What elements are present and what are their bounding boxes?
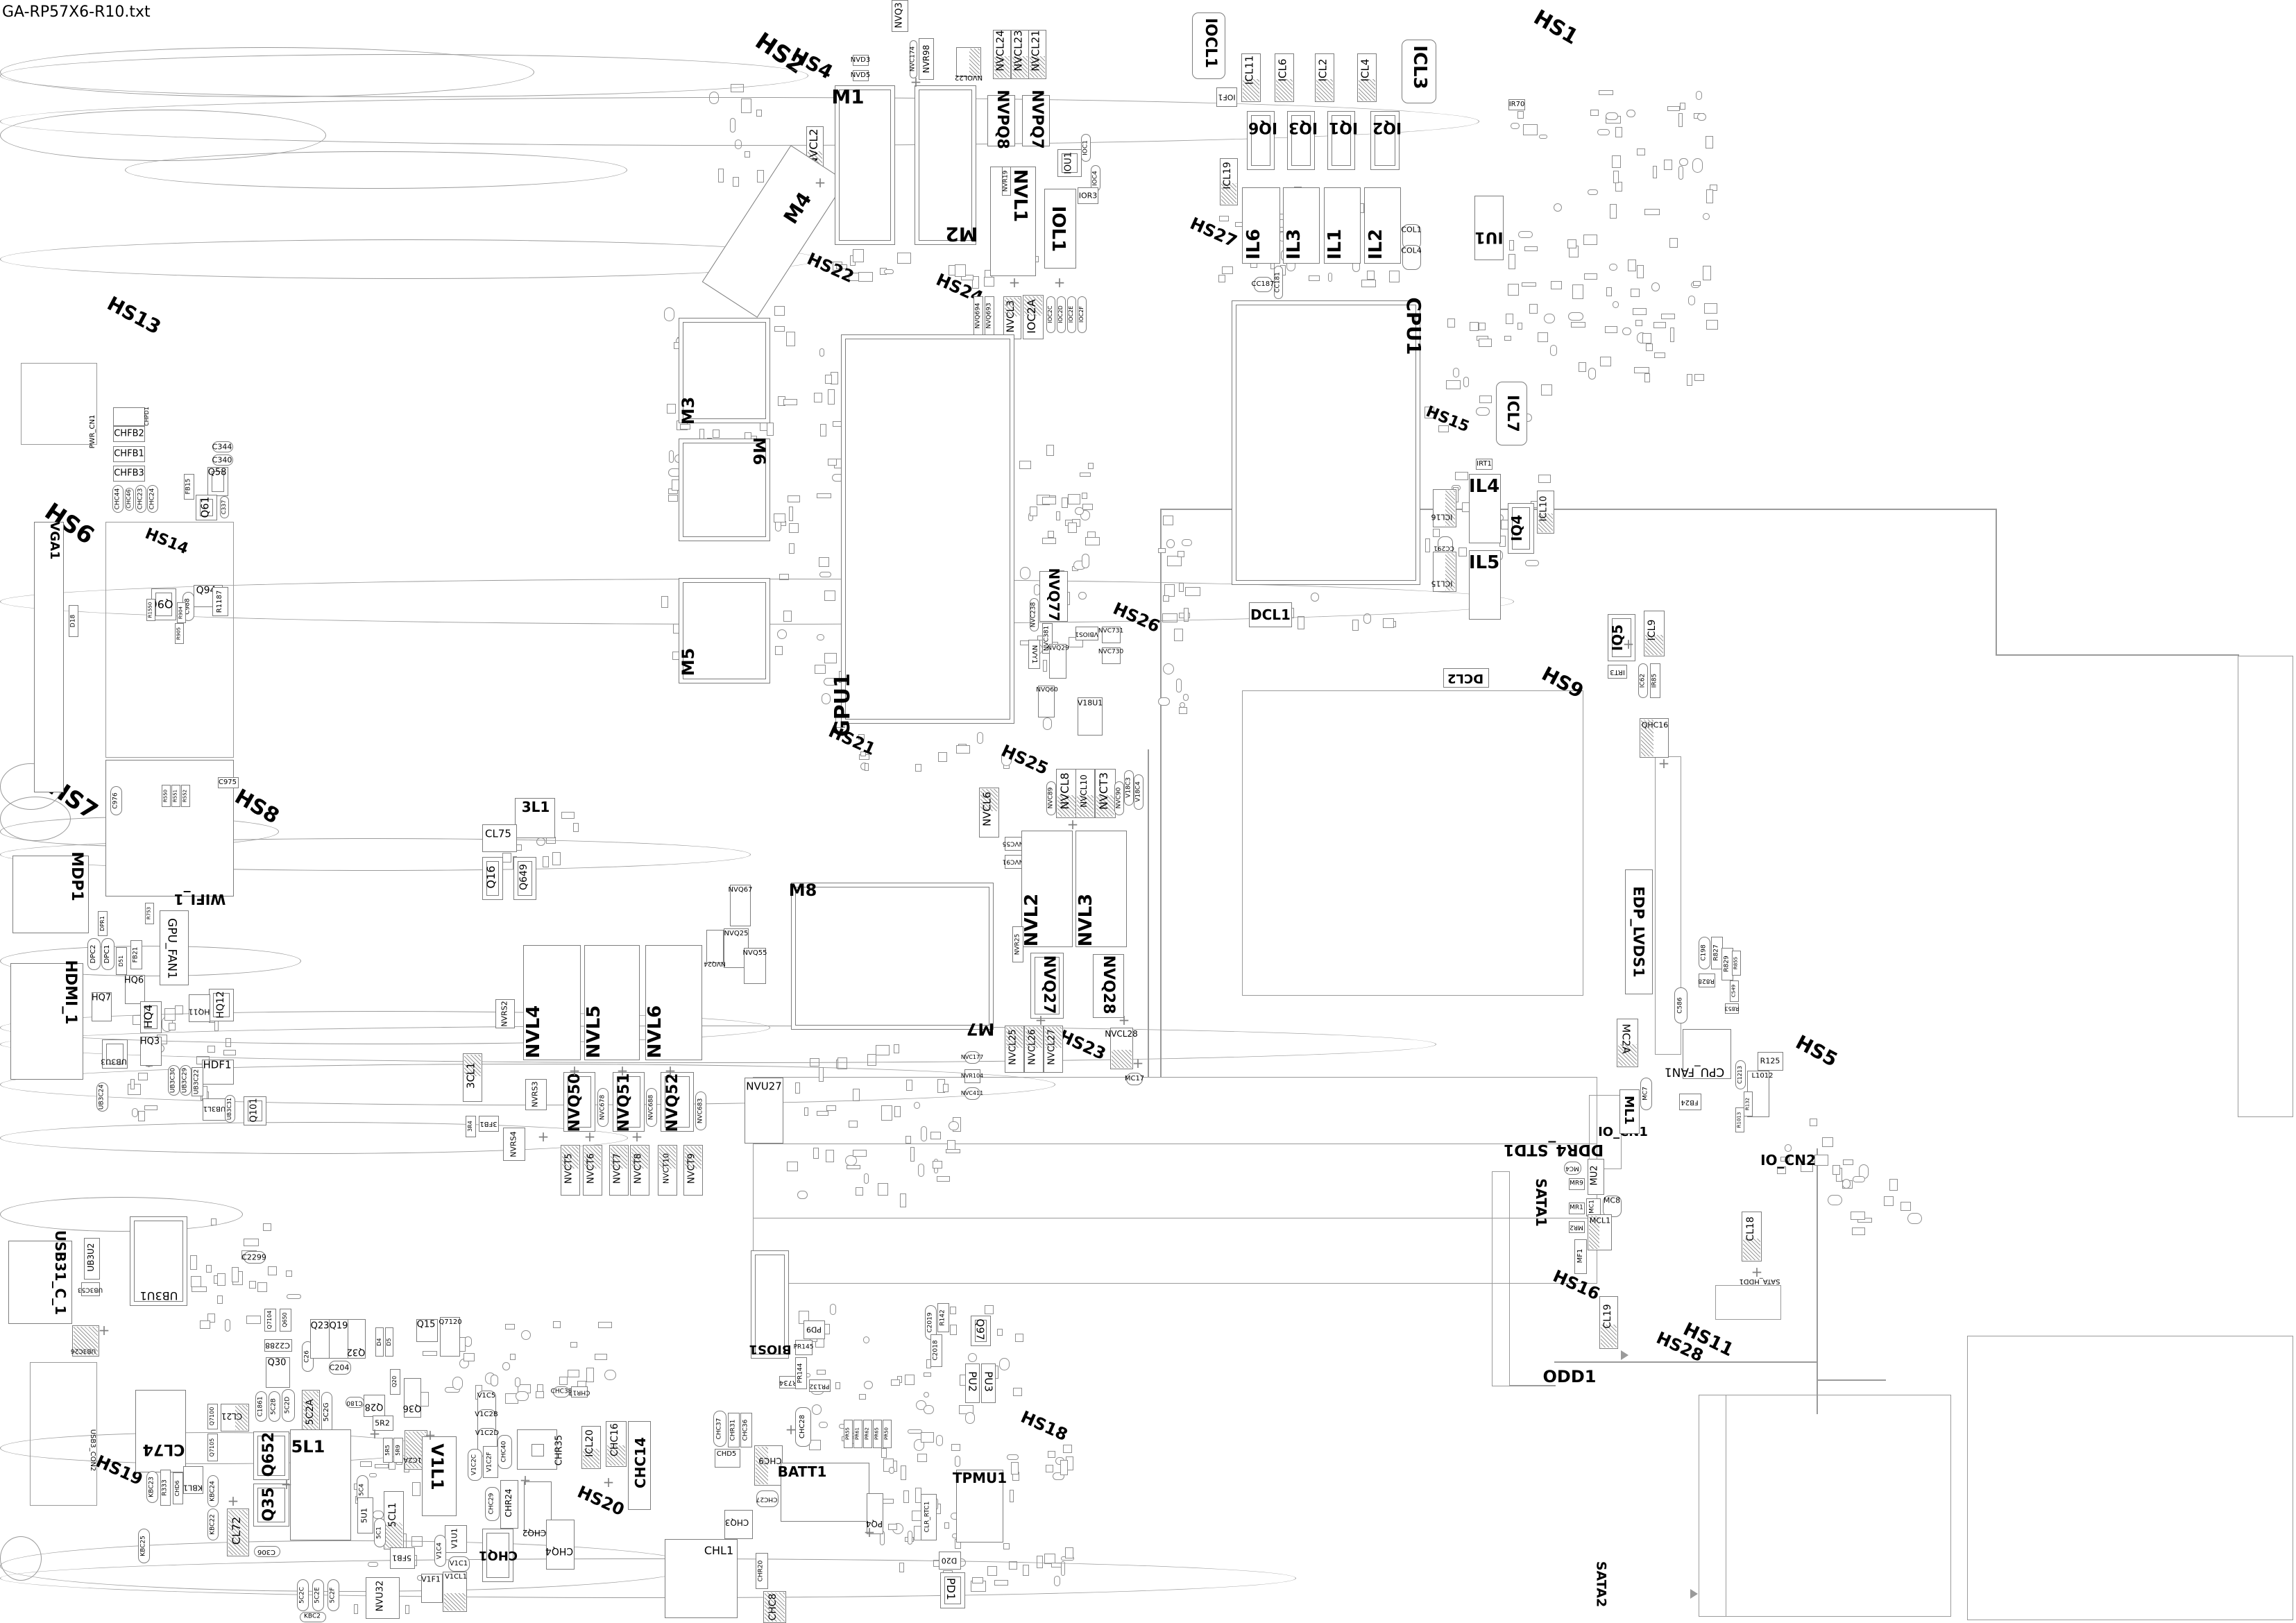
component-label-NVL1: NVL1: [1011, 169, 1029, 223]
component-label-UB3U2: UB3U2: [87, 1243, 95, 1271]
noise-part: [1179, 707, 1187, 714]
component-label-NVCL10: NVCL10: [1080, 774, 1088, 808]
component-label-HQ4: HQ4: [143, 1005, 154, 1029]
component-label-NVOL22: NVOL22: [955, 74, 983, 80]
noise-part: [1524, 246, 1538, 251]
component-label-NVC411: NVC411: [961, 1091, 983, 1096]
component-label-Q97: Q97: [975, 1319, 985, 1341]
noise-part: [668, 495, 678, 502]
noise-part: [1367, 271, 1375, 280]
component-label-C1213: C1213: [1737, 1066, 1743, 1084]
component-label-R1187: R1187: [216, 590, 223, 613]
component-CPU1: [1232, 300, 1420, 585]
component-label-R552: R552: [183, 790, 188, 802]
noise-part: [955, 1456, 960, 1467]
noise-part: [956, 745, 970, 754]
noise-part: [405, 1605, 409, 1614]
component-label-CHC36: CHC36: [743, 1420, 749, 1441]
board-outline-line: [1817, 1379, 1886, 1381]
component-label-5U1: 5U1: [361, 1508, 368, 1523]
noise-part: [1176, 679, 1182, 692]
component-label-CHD6: CHD6: [175, 1481, 180, 1497]
noise-part: [774, 513, 785, 522]
component-label-IOC2A: IOC2A: [1026, 299, 1037, 334]
noise-part: [1615, 127, 1622, 137]
noise-part: [921, 1126, 927, 1141]
noise-part: [900, 1193, 906, 1207]
component-label-PR61: PR61: [856, 1427, 860, 1440]
component-label-NVCT6: NVCT6: [587, 1153, 596, 1184]
component-label-PU3: PU3: [983, 1371, 994, 1392]
component-label-QHC16: QHC16: [1642, 722, 1669, 729]
noise-part: [1588, 368, 1596, 380]
noise-part: [1043, 660, 1047, 672]
noise-part: [192, 1286, 207, 1292]
component-label-Q101: Q101: [250, 1098, 259, 1122]
component-label-CC181: CC181: [1275, 272, 1282, 293]
component-label-ICL20: ICL20: [585, 1429, 595, 1457]
noise-part: [865, 763, 869, 771]
noise-part: [1572, 284, 1583, 299]
noise-part: [946, 1149, 960, 1153]
noise-part: [505, 1324, 515, 1329]
component-label-NVCL28: NVCL28: [1105, 1030, 1138, 1038]
noise-part: [1068, 494, 1080, 504]
noise-part: [1670, 328, 1674, 342]
noise-part: [561, 812, 575, 819]
component-label-HDF1: HDF1: [203, 1060, 231, 1071]
component-label-CHC40: CHC40: [502, 1441, 508, 1463]
noise-part: [1476, 407, 1490, 416]
component-label-ICL10: ICL10: [1540, 496, 1549, 522]
component-label-UB3C22: UB3C22: [194, 1069, 201, 1094]
noise-part: [1706, 320, 1718, 330]
component-label-IL4: IL4: [1469, 477, 1499, 495]
component-label-NVQ24: NVQ24: [704, 960, 725, 967]
component-label-NVD5: NVD5: [851, 72, 870, 79]
noise-part: [1163, 663, 1174, 674]
noise-part: [1352, 620, 1359, 631]
component-label-ICL6: ICL6: [1278, 59, 1289, 82]
component-label-IOR3: IOR3: [1079, 192, 1098, 200]
noise-part: [819, 1422, 828, 1428]
component-label-MR1: MR1: [1570, 1205, 1583, 1212]
noise-part: [1361, 280, 1376, 287]
component-NVOL22: [956, 47, 981, 77]
component-label-CHQ1: CHQ1: [479, 1549, 518, 1561]
noise-part: [598, 1322, 612, 1328]
component-label-NVCT3: NVCT3: [1098, 772, 1109, 810]
noise-part: [1158, 697, 1170, 706]
fiducial-mark: +: [1035, 1012, 1047, 1028]
component-label-PR55: PR55: [846, 1427, 851, 1440]
noise-part: [1007, 1454, 1019, 1460]
noise-part: [817, 1111, 828, 1116]
noise-part: [1479, 396, 1492, 403]
noise-part: [1600, 357, 1611, 366]
component-label-ICL19: ICL19: [1223, 162, 1232, 189]
noise-part: [1219, 216, 1229, 221]
noise-part: [835, 1382, 840, 1389]
noise-part: [1610, 204, 1617, 219]
component-label-V18U1: V18U1: [1078, 699, 1103, 707]
component-label-CC187: CC187: [1251, 281, 1274, 288]
component-label-HQ6: HQ6: [124, 976, 144, 985]
component-label-SATA1: SATA1: [1534, 1178, 1548, 1227]
noise-part: [1048, 1451, 1055, 1458]
noise-part: [1597, 129, 1610, 135]
component-label-PR144: PR144: [798, 1363, 804, 1384]
noise-part: [1588, 189, 1598, 195]
component-label-KBC25: KBC25: [141, 1536, 147, 1556]
component-label-C337: C337: [221, 500, 227, 515]
noise-part: [1842, 1179, 1851, 1189]
noise-part: [853, 249, 864, 262]
direction-arrow-icon: [1690, 1589, 1698, 1599]
noise-part: [1463, 377, 1469, 387]
noise-part: [1544, 314, 1555, 323]
noise-part: [997, 1329, 1003, 1336]
noise-part: [553, 1321, 561, 1328]
component-label-L1012: L1012: [1751, 1073, 1773, 1080]
component-label-CHQ2: CHQ2: [522, 1529, 546, 1537]
component-label-Q61: Q61: [201, 497, 211, 518]
fiducial-mark: +: [631, 1128, 643, 1145]
component-label-NVPQ7: NVPQ7: [1029, 90, 1044, 149]
component-label-R132: R132: [1746, 1098, 1751, 1110]
noise-part: [1182, 539, 1192, 546]
noise-part: [287, 1294, 301, 1299]
noise-part: [568, 1370, 579, 1377]
component-label-ODD1: ODD1: [1543, 1368, 1597, 1385]
noise-part: [1678, 113, 1683, 127]
noise-part: [817, 634, 824, 640]
component-label-NVC89: NVC89: [1048, 788, 1055, 809]
noise-part: [1613, 301, 1619, 308]
noise-part: [814, 393, 822, 402]
component-label-R142: R142: [940, 1309, 946, 1325]
component-label-UB3C26: UB3C26: [71, 1348, 96, 1354]
component-label-IOL1: IOL1: [1049, 206, 1067, 252]
board-outline-line: [1817, 1361, 1818, 1414]
noise-part: [1042, 497, 1056, 504]
fiducial-mark: +: [99, 1322, 110, 1339]
component-label-UB3C29: UB3C29: [182, 1068, 189, 1093]
noise-part: [937, 1176, 950, 1182]
component-label-Q36: Q36: [403, 1404, 422, 1413]
component-label-HDMI_1: HDMI_1: [62, 960, 78, 1024]
noise-part: [713, 430, 720, 438]
noise-part: [1584, 273, 1597, 280]
component-label-Q7100: Q7100: [210, 1407, 215, 1426]
noise-part: [1222, 266, 1233, 274]
noise-part: [1889, 1179, 1898, 1191]
component-label-C204: C204: [330, 1364, 350, 1372]
component-label-V1C2C: V1C2C: [472, 1454, 478, 1475]
board-outline: [21, 363, 97, 445]
component-label-CL72: CL72: [231, 1517, 242, 1545]
noise-part: [1015, 1334, 1023, 1342]
noise-part: [1508, 284, 1519, 296]
component-label-5CL1: 5CL1: [388, 1502, 398, 1527]
noise-part: [1631, 289, 1640, 297]
noise-part: [1692, 158, 1703, 173]
noise-part: [1605, 326, 1617, 333]
component-label-ICL11: ICL11: [1245, 56, 1255, 85]
noise-part: [828, 459, 837, 466]
component-label-C306: C306: [257, 1548, 275, 1555]
board-outline: [105, 522, 234, 758]
noise-part: [968, 1353, 977, 1362]
component-label-V18C4: V18C4: [1136, 781, 1142, 802]
noise-part: [894, 1106, 901, 1117]
component-label-IU1: IU1: [1474, 229, 1503, 244]
component-label-NVRS2: NVRS2: [501, 1001, 509, 1026]
noise-part: [774, 306, 785, 316]
mount-hole-label-HS13: HS13: [104, 294, 164, 337]
fiducial-mark: +: [910, 74, 922, 90]
component-label-NVCL8: NVCL8: [1060, 772, 1071, 809]
component-label-Q7104: Q7104: [267, 1311, 273, 1329]
component-label-NVL3: NVL3: [1077, 894, 1095, 947]
component-label-CPU1: CPU1: [1404, 297, 1423, 355]
component-label-R828: R828: [1698, 978, 1714, 984]
component-label-M1: M1: [831, 87, 864, 107]
fiducial-mark: +: [369, 1425, 381, 1442]
component-label-CHC37: CHC37: [717, 1418, 723, 1440]
component-label-NVQ55: NVQ55: [743, 950, 767, 957]
noise-part: [510, 1354, 516, 1360]
component-label-M6: M6: [751, 437, 767, 466]
noise-part: [360, 1461, 372, 1467]
component-label-HQ12: HQ12: [216, 991, 226, 1018]
component-label-NVL2: NVL2: [1023, 894, 1041, 947]
component-label-CHR24: CHR24: [504, 1488, 513, 1517]
noise-part: [1166, 539, 1175, 548]
component-label-IL6: IL6: [1245, 229, 1263, 260]
component-CL74: [135, 1390, 186, 1472]
fiducial-mark: +: [1119, 1012, 1130, 1028]
noise-part: [502, 1362, 510, 1370]
component-label-VGA1: VGA1: [48, 521, 60, 559]
noise-part: [1654, 352, 1665, 358]
component-label-HQ7: HQ7: [92, 994, 111, 1003]
component-label-EDP_LVDS1: EDP_LVDS1: [1631, 886, 1646, 978]
component-label-NVQ25: NVQ25: [724, 931, 749, 937]
component-label-5C1: 5C1: [377, 1527, 383, 1539]
noise-part: [1694, 374, 1704, 381]
noise-part: [1523, 124, 1538, 135]
noise-part: [1538, 475, 1551, 483]
component-label-M2: M2: [945, 224, 978, 244]
noise-part: [924, 1405, 934, 1414]
component-label-NVY1: NVY1: [1030, 645, 1037, 664]
component-label-NVQ29: NVQ29: [1047, 646, 1069, 652]
noise-part: [733, 177, 739, 187]
noise-part: [1687, 374, 1692, 386]
component-label-PU2: PU2: [967, 1371, 978, 1392]
component-GPU1: [841, 334, 1014, 724]
component-label-V1C1: V1C1: [450, 1561, 468, 1567]
component-label-NVPQ8: NVPQ8: [994, 90, 1010, 149]
noise-part: [1704, 303, 1717, 314]
mount-hole-label-HS22: HS22: [805, 250, 856, 286]
noise-part: [1696, 91, 1702, 100]
noise-part: [1634, 367, 1649, 373]
component-label-NVC177: NVC177: [961, 1055, 983, 1060]
noise-part: [924, 1373, 931, 1377]
noise-part: [423, 1351, 437, 1356]
component-label-NVL6: NVL6: [646, 1005, 664, 1059]
component-label-CHQ4: CHQ4: [545, 1546, 573, 1556]
noise-part: [897, 253, 911, 264]
component-label-5C2A: 5C2A: [305, 1399, 315, 1425]
board-outline: [30, 1362, 97, 1506]
noise-part: [905, 1375, 915, 1385]
noise-part: [1158, 548, 1166, 553]
component-label-5C2G: 5C2G: [323, 1402, 330, 1421]
fiducial-mark: +: [1751, 1264, 1763, 1280]
noise-part: [144, 1105, 158, 1110]
component-label-FB15: FB15: [186, 479, 192, 495]
noise-part: [1550, 345, 1557, 356]
component-label-CHL1: CHL1: [704, 1545, 733, 1556]
noise-part: [1822, 1137, 1833, 1147]
noise-part: [1056, 511, 1060, 520]
noise-part: [1622, 328, 1631, 335]
component-label-MC8: MC8: [1604, 1197, 1620, 1205]
noise-part: [786, 332, 795, 346]
fiducial-mark: +: [228, 1493, 239, 1509]
component-label-V1C5: V1C5: [477, 1393, 496, 1400]
component-label-C2299: C2299: [241, 1254, 266, 1261]
noise-part: [815, 665, 826, 674]
component-label-R905: R905: [177, 627, 182, 640]
component-label-5C2D: 5C2D: [285, 1397, 291, 1414]
noise-part: [1579, 362, 1586, 372]
noise-part: [491, 1375, 498, 1386]
noise-part: [1851, 1212, 1865, 1220]
component-label-MC7: MC7: [1643, 1087, 1649, 1101]
noise-part: [1538, 332, 1548, 342]
fiducial-mark: +: [1658, 755, 1670, 772]
component-label-CHD5: CHD5: [717, 1451, 737, 1458]
noise-part: [1706, 136, 1713, 148]
component-label-Q15: Q15: [417, 1320, 436, 1329]
noise-part: [190, 1255, 197, 1270]
noise-part: [1551, 281, 1562, 289]
noise-part: [232, 1267, 239, 1282]
component-label-CHC23: CHC23: [138, 488, 144, 510]
noise-part: [826, 1105, 836, 1111]
component-label-PR62: PR62: [865, 1427, 870, 1440]
noise-part: [1218, 275, 1225, 282]
component-label-CHFB1: CHFB1: [114, 450, 144, 459]
board-outline-line: [1817, 1148, 1818, 1361]
noise-part: [257, 1282, 267, 1292]
component-label-R333: R333: [162, 1479, 169, 1495]
component-label-D5: D5: [386, 1338, 392, 1345]
component-M8: [791, 883, 994, 1030]
noise-part: [1446, 380, 1461, 389]
noise-part: [263, 1223, 271, 1231]
noise-part: [1183, 694, 1189, 701]
mount-hole-HS26: [0, 1122, 628, 1154]
noise-part: [1042, 538, 1056, 544]
component-label-ICL9: ICL9: [1647, 620, 1657, 641]
component-label-CHC44: CHC44: [115, 488, 121, 510]
component-label-NVCL6: NVCL6: [983, 792, 993, 826]
noise-part: [249, 1281, 256, 1289]
component-CHPD1: [113, 407, 145, 426]
component-label-IOCL1: IOCL1: [1202, 18, 1218, 68]
component-label-NVQ50: NVQ50: [568, 1073, 583, 1132]
component-label-ICL7: ICL7: [1504, 395, 1520, 432]
component-label-R753: R753: [147, 907, 152, 919]
component-label-IL3: IL3: [1285, 229, 1303, 260]
noise-part: [908, 1429, 922, 1434]
noise-part: [789, 523, 799, 533]
noise-part: [1003, 1543, 1010, 1549]
noise-part: [1693, 281, 1701, 286]
noise-part: [1529, 304, 1538, 314]
component-label-M8: M8: [789, 882, 817, 899]
board-outline-line: [753, 1218, 1597, 1218]
component-label-NVQ51: NVQ51: [617, 1073, 632, 1132]
component-label-MU2: MU2: [1590, 1165, 1599, 1185]
board-outline: [2238, 656, 2293, 1117]
noise-part: [1843, 1159, 1853, 1165]
noise-part: [1060, 1460, 1068, 1475]
noise-part: [767, 423, 774, 436]
component-label-UB3C30: UB3C30: [171, 1068, 177, 1093]
noise-part: [1644, 209, 1660, 215]
noise-part: [1518, 231, 1533, 238]
noise-part: [788, 495, 800, 502]
noise-part: [1642, 333, 1651, 343]
noise-part: [1433, 529, 1440, 537]
component-label-NVQ52: NVQ52: [665, 1073, 681, 1132]
component-label-V1F1: V1F1: [421, 1576, 441, 1583]
noise-part: [412, 1482, 420, 1496]
noise-part: [863, 1336, 869, 1343]
component-label-IOU1: IOU1: [1064, 152, 1073, 174]
component-label-3CL1: 3CL1: [466, 1062, 477, 1089]
component-label-CL18: CL18: [1746, 1216, 1755, 1241]
noise-part: [286, 1271, 292, 1277]
noise-part: [1703, 266, 1711, 280]
component-label-KBC24: KBC24: [210, 1481, 216, 1502]
noise-part: [1470, 322, 1479, 331]
component-label-PR145: PR145: [794, 1345, 814, 1351]
fiducial-mark: +: [1009, 274, 1021, 291]
component-label-DCL1: DCL1: [1250, 608, 1291, 622]
component-label-NVQ3: NVQ3: [895, 2, 904, 28]
noise-part: [1667, 106, 1680, 111]
noise-part: [910, 1147, 915, 1162]
noise-part: [1606, 287, 1612, 296]
component-label-V1C4: V1C4: [437, 1543, 443, 1559]
component-label-Q58: Q58: [208, 468, 227, 477]
noise-part: [999, 1358, 1010, 1370]
board-outline-line: [1996, 654, 2239, 656]
board-outline-line: [1554, 1361, 1818, 1363]
component-label-D20: D20: [942, 1557, 957, 1565]
noise-part: [849, 1121, 858, 1128]
noise-part: [1085, 537, 1100, 545]
component-label-D51: D51: [119, 955, 124, 967]
mount-hole-HS7: [0, 54, 808, 97]
